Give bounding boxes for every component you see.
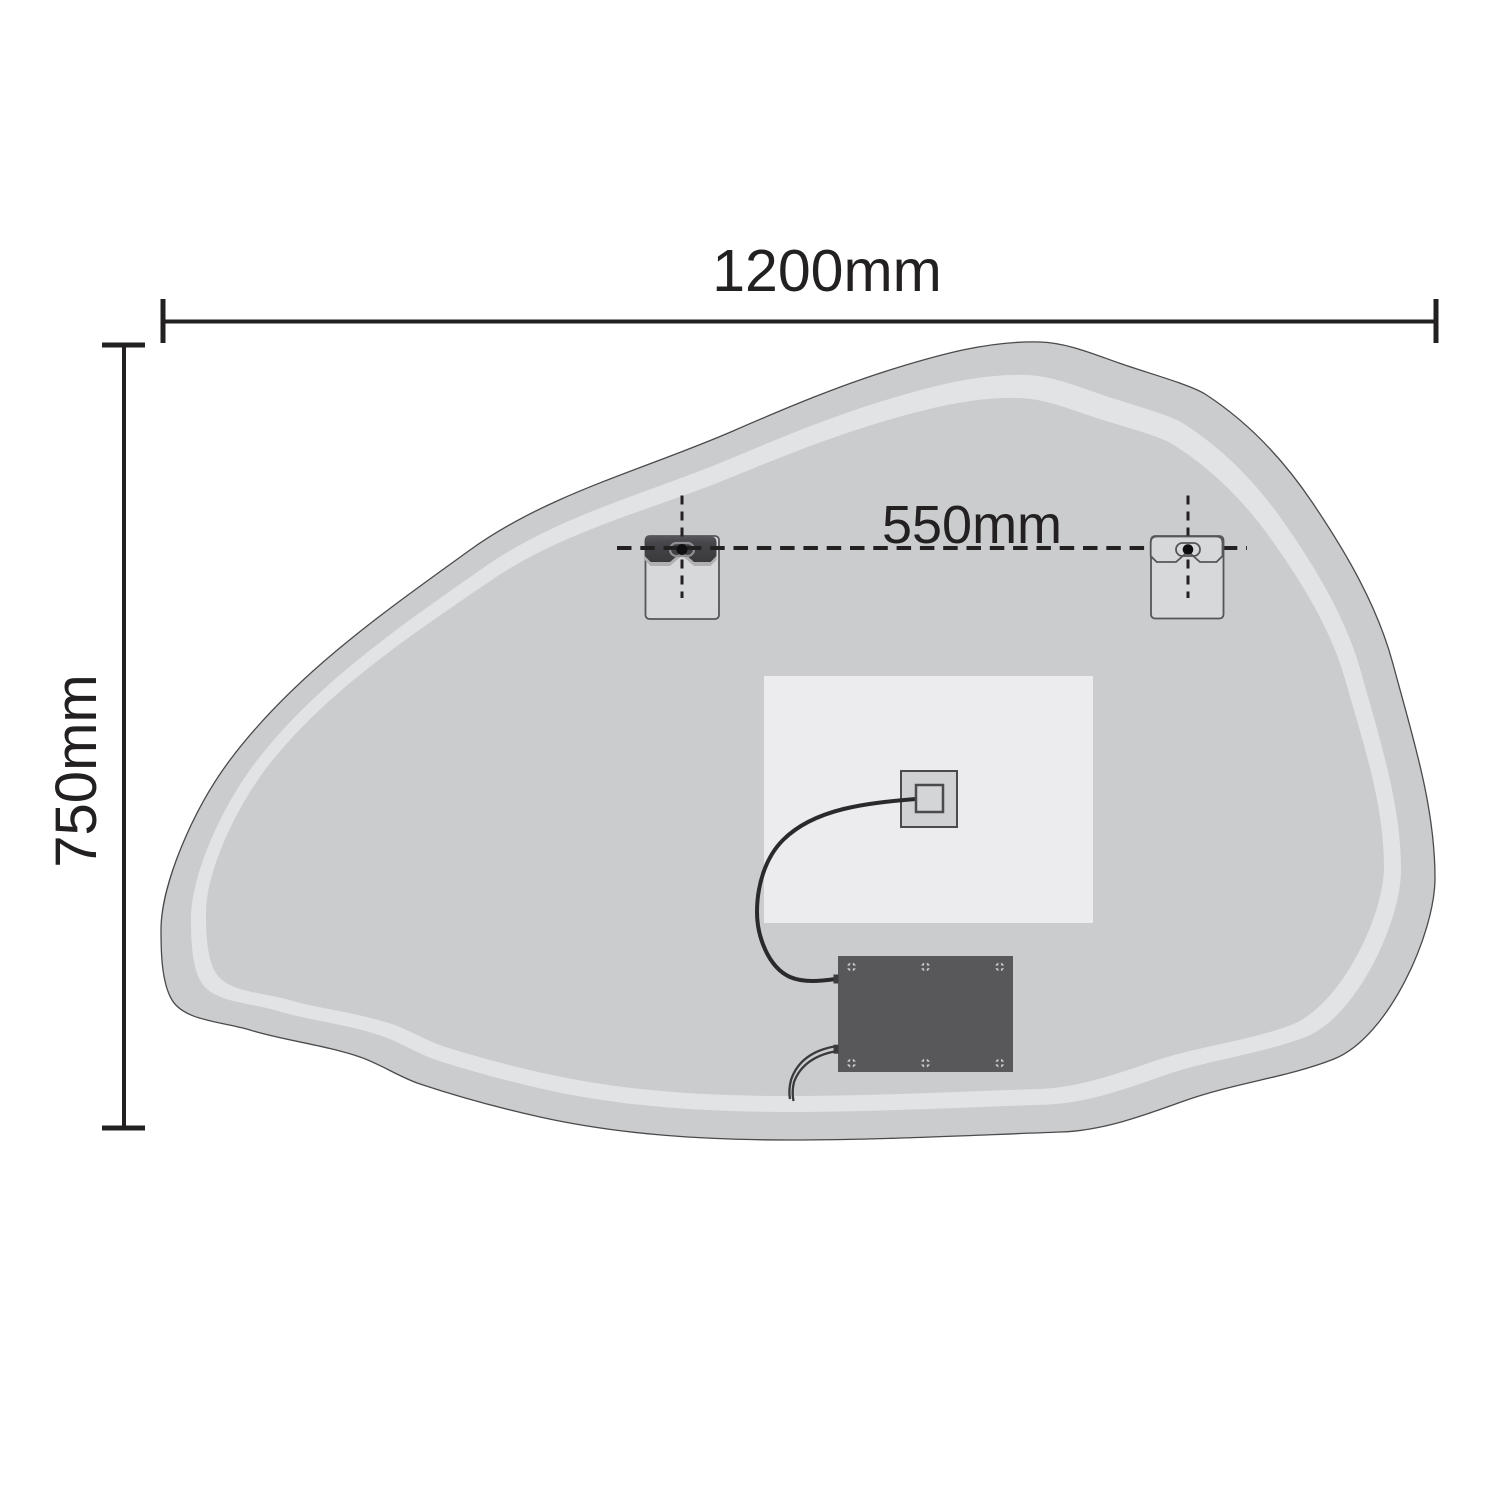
svg-text:750mm: 750mm (44, 674, 109, 867)
svg-text:1200mm: 1200mm (712, 238, 942, 304)
